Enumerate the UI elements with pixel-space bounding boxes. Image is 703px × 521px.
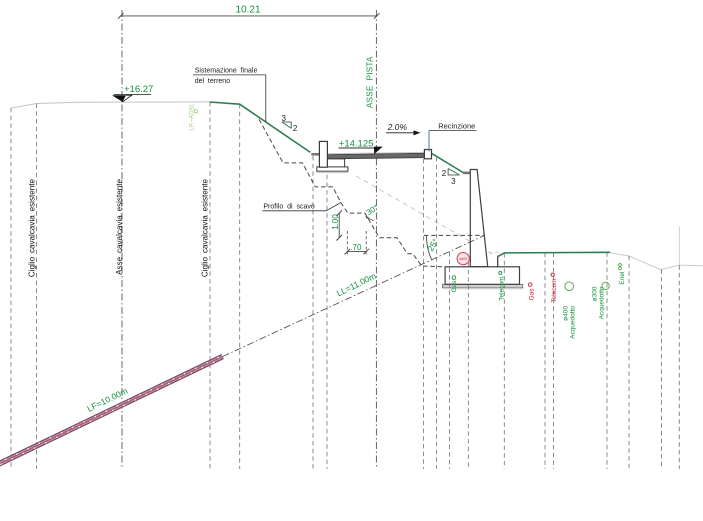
- svg-text:.70: .70: [350, 243, 362, 252]
- svg-text:3: 3: [451, 177, 456, 186]
- svg-text:ø400: ø400: [459, 257, 467, 261]
- svg-text:Telecom: Telecom: [499, 277, 506, 301]
- svg-text:ASSE PISTA: ASSE PISTA: [366, 56, 375, 108]
- svg-text:Acquedotto: Acquedotto: [598, 286, 605, 319]
- svg-text:2.0%: 2.0%: [387, 122, 408, 132]
- svg-text:Enel: Enel: [619, 271, 626, 285]
- svg-text:del terreno: del terreno: [195, 78, 231, 85]
- svg-text:+16.27: +16.27: [124, 84, 153, 95]
- svg-text:Ciglio cavalcavia esistente: Ciglio cavalcavia esistente: [28, 179, 37, 278]
- svg-text:10.21: 10.21: [235, 5, 260, 16]
- svg-text:Gas: Gas: [529, 288, 536, 301]
- svg-text:LP.~ADSL: LP.~ADSL: [190, 103, 196, 131]
- svg-text:Ciglio cavalcavia esistente: Ciglio cavalcavia esistente: [201, 179, 210, 278]
- svg-text:Sistemazione finale: Sistemazione finale: [195, 68, 258, 75]
- svg-text:1.00: 1.00: [331, 214, 340, 230]
- svg-text:Acquedotto: Acquedotto: [570, 306, 577, 339]
- svg-text:ø300: ø300: [591, 286, 598, 301]
- svg-text:ø400: ø400: [563, 306, 570, 321]
- svg-text:Gas: Gas: [451, 280, 458, 293]
- svg-text:3: 3: [282, 114, 287, 123]
- svg-text:2: 2: [442, 169, 447, 178]
- svg-text:Profilo di scavo: Profilo di scavo: [263, 203, 314, 210]
- svg-text:Asse cavalcavia esistente: Asse cavalcavia esistente: [115, 179, 124, 275]
- svg-text:Telecom: Telecom: [551, 279, 558, 303]
- svg-text:Recinzione: Recinzione: [438, 122, 475, 131]
- svg-text:2: 2: [293, 124, 298, 133]
